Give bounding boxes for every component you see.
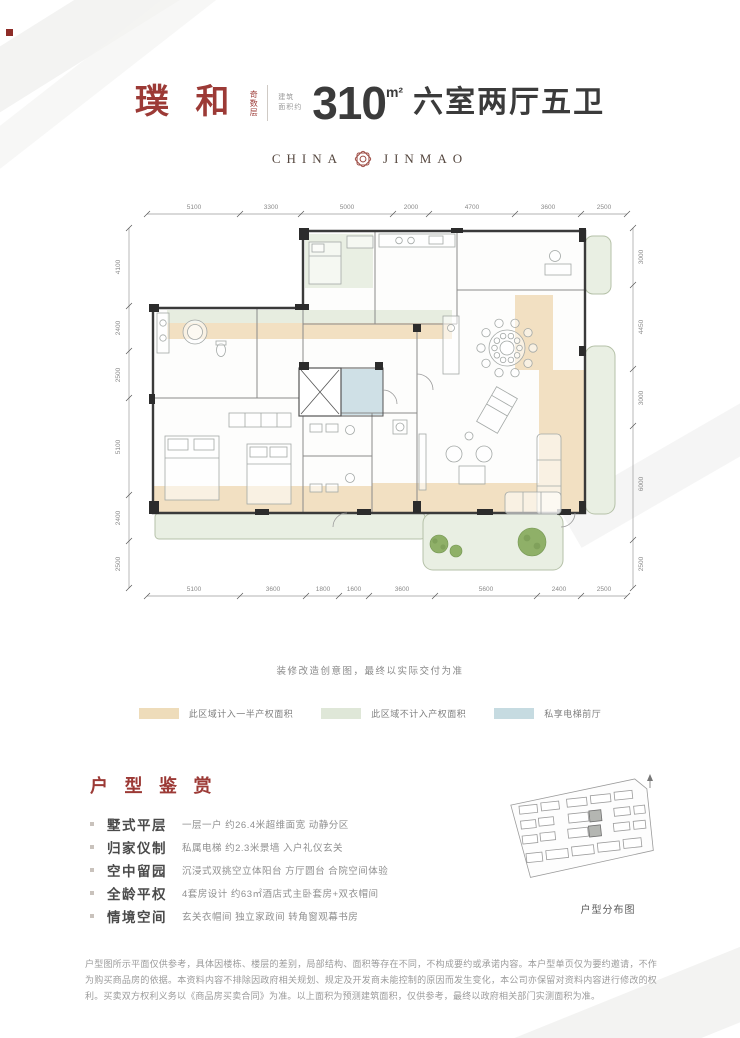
floor-plan-area: 5100 3300 5000 2000 4700 3600 2500 5100 …	[107, 198, 652, 618]
item-desc: 一层一户 约26.4米超维面宽 动静分区	[182, 817, 349, 831]
area-label-line1: 建筑	[278, 94, 294, 101]
svg-text:5100: 5100	[187, 586, 202, 593]
brochure-page: 璞 和 奇数层 建筑 面积约 310m² 六室两厅五卫 CHINA JINMAO	[0, 0, 740, 1038]
plan-legend: 此区域计入一半产权面积 此区域不计入产权面积 私享电梯前厅	[0, 707, 740, 720]
elevator-lobby-zone	[341, 369, 383, 415]
layout-text: 六室两厅五卫	[413, 88, 605, 118]
item-term: 情境空间	[107, 906, 169, 926]
legend-item-elevator-lobby: 私享电梯前厅	[494, 707, 601, 720]
svg-text:5000: 5000	[340, 204, 355, 211]
item-term: 归家仪制	[107, 837, 169, 857]
floor-tag: 奇数层	[248, 90, 257, 117]
svg-text:4450: 4450	[638, 319, 645, 334]
north-arrow-icon	[647, 774, 653, 788]
svg-text:3600: 3600	[266, 586, 281, 593]
brand-logo: CHINA JINMAO	[0, 148, 740, 170]
svg-text:3600: 3600	[395, 586, 410, 593]
armchair	[446, 446, 462, 462]
list-item: 墅式平层 一层一户 约26.4米超维面宽 动静分区	[90, 812, 388, 835]
legend-label: 私享电梯前厅	[544, 707, 601, 720]
floor-plan: 5100 3300 5000 2000 4700 3600 2500 5100 …	[107, 198, 652, 618]
svg-text:1600: 1600	[347, 586, 362, 593]
list-item: 归家仪制 私属电梯 约2.3米景墙 入户礼仪玄关	[90, 835, 388, 858]
item-desc: 4套房设计 约63㎡酒店式主卧套房+双衣帽间	[182, 886, 379, 900]
item-term: 空中留园	[107, 860, 169, 880]
legend-swatch-beige	[139, 708, 179, 719]
header: 璞 和 奇数层 建筑 面积约 310m² 六室两厅五卫	[0, 80, 740, 126]
svg-text:2500: 2500	[638, 556, 645, 571]
area-label-line2: 面积约	[278, 104, 302, 111]
legend-label: 此区域不计入产权面积	[371, 707, 466, 720]
svg-text:3000: 3000	[638, 390, 645, 405]
area-number: 310	[312, 77, 386, 129]
legend-swatch-blue	[494, 708, 534, 719]
svg-text:2000: 2000	[404, 204, 419, 211]
svg-text:5100: 5100	[115, 439, 122, 454]
list-item: 情境空间 玄关衣帽间 独立家政间 转角窗观幕书房	[90, 904, 388, 927]
svg-text:3300: 3300	[264, 204, 279, 211]
disclaimer-text: 户型图所示平面仅供参考，具体因楼栋、楼层的差别，局部结构、面积等存在不同，不构成…	[85, 957, 657, 1004]
area-value: 310m²	[312, 80, 403, 126]
svg-text:5600: 5600	[479, 586, 494, 593]
bullet-icon	[90, 891, 94, 895]
item-term: 全龄平权	[107, 883, 169, 903]
list-item: 空中留园 沉浸式双挑空立体阳台 方厅圆台 合院空间体验	[90, 858, 388, 881]
svg-text:3000: 3000	[638, 249, 645, 264]
logo-word-china: CHINA	[272, 151, 343, 167]
svg-text:3600: 3600	[541, 204, 556, 211]
corner-mark	[6, 29, 13, 36]
svg-text:1800: 1800	[316, 586, 331, 593]
area-label: 建筑 面积约	[278, 93, 302, 114]
svg-text:2500: 2500	[597, 204, 612, 211]
svg-text:4100: 4100	[115, 259, 122, 274]
svg-text:5100: 5100	[187, 204, 202, 211]
legend-label: 此区域计入一半产权面积	[189, 707, 294, 720]
legend-item-not-counted: 此区域不计入产权面积	[321, 707, 466, 720]
item-desc: 沉浸式双挑空立体阳台 方厅圆台 合院空间体验	[182, 863, 388, 877]
appreciation-list: 墅式平层 一层一户 约26.4米超维面宽 动静分区 归家仪制 私属电梯 约2.3…	[90, 812, 388, 927]
svg-text:2400: 2400	[115, 320, 122, 335]
item-desc: 私属电梯 约2.3米景墙 入户礼仪玄关	[182, 840, 343, 854]
armchair	[476, 446, 492, 462]
list-item: 全龄平权 4套房设计 约63㎡酒店式主卧套房+双衣帽间	[90, 881, 388, 904]
jinmao-knot-icon	[352, 148, 374, 170]
bullet-icon	[90, 822, 94, 826]
bullet-icon	[90, 845, 94, 849]
bullet-icon	[90, 868, 94, 872]
plan-note: 装修改造创意图，最终以实际交付为准	[0, 663, 740, 677]
svg-text:4700: 4700	[465, 204, 480, 211]
area-unit: m²	[386, 84, 403, 100]
item-term: 墅式平层	[107, 814, 169, 834]
svg-text:2500: 2500	[115, 367, 122, 382]
brand-name: 璞 和	[135, 86, 239, 120]
svg-text:2400: 2400	[115, 510, 122, 525]
item-desc: 玄关衣帽间 独立家政间 转角窗观幕书房	[182, 909, 358, 923]
section-title: 户 型 鉴 赏	[90, 772, 388, 798]
svg-text:2400: 2400	[552, 586, 567, 593]
distribution-caption: 户型分布图	[553, 901, 663, 916]
svg-text:2500: 2500	[115, 556, 122, 571]
svg-text:2500: 2500	[597, 586, 612, 593]
legend-item-half-property: 此区域计入一半产权面积	[139, 707, 294, 720]
logo-word-jinmao: JINMAO	[383, 151, 468, 167]
bullet-icon	[90, 914, 94, 918]
legend-swatch-green	[321, 708, 361, 719]
unit-distribution-map	[498, 772, 663, 897]
appreciation-section: 户 型 鉴 赏 墅式平层 一层一户 约26.4米超维面宽 动静分区 归家仪制 私…	[90, 772, 388, 927]
svg-text:6000: 6000	[638, 476, 645, 491]
header-divider	[267, 85, 268, 121]
